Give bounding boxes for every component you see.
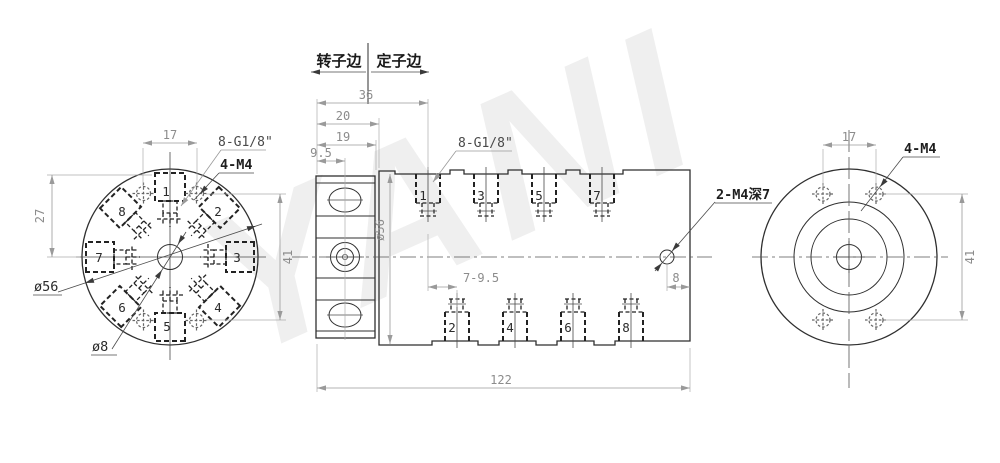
svg-text:5: 5 (163, 319, 171, 334)
svg-text:8: 8 (672, 271, 679, 285)
svg-text:8-G1/8": 8-G1/8" (218, 135, 273, 150)
svg-text:17: 17 (842, 130, 856, 144)
svg-text:6: 6 (118, 300, 126, 315)
stator-side-label: 定子边 (376, 52, 422, 70)
svg-text:6: 6 (564, 320, 572, 335)
svg-text:2: 2 (448, 320, 456, 335)
svg-text:17: 17 (163, 128, 177, 142)
svg-text:4: 4 (214, 300, 222, 315)
svg-text:5: 5 (535, 188, 543, 203)
svg-text:3: 3 (477, 188, 485, 203)
drawing-svg: YANI 转子边 定子边 1 2 3 4 5 6 (0, 0, 1000, 463)
middle-dim-8: 8 (667, 263, 690, 291)
svg-text:4: 4 (506, 320, 514, 335)
svg-text:19: 19 (336, 130, 350, 144)
svg-text:7: 7 (95, 250, 103, 265)
svg-text:20: 20 (336, 109, 350, 123)
svg-text:3: 3 (233, 250, 241, 265)
svg-text:2-M4深7: 2-M4深7 (716, 186, 770, 203)
svg-text:2: 2 (214, 204, 222, 219)
svg-text:8-G1/8": 8-G1/8" (458, 136, 513, 151)
svg-text:7: 7 (593, 188, 601, 203)
svg-text:27: 27 (33, 209, 47, 223)
svg-text:8: 8 (622, 320, 630, 335)
svg-text:122: 122 (490, 373, 512, 387)
technical-drawing-canvas: YANI 转子边 定子边 1 2 3 4 5 6 (0, 0, 1000, 463)
svg-text:ø8: ø8 (92, 339, 108, 355)
svg-text:1: 1 (419, 188, 427, 203)
right-dim-17: 17 (823, 130, 876, 186)
svg-text:ø56: ø56 (373, 219, 387, 241)
svg-text:36: 36 (359, 88, 373, 102)
right-view: 17 41 4-M4 (752, 130, 977, 388)
svg-text:41: 41 (963, 250, 977, 264)
svg-text:7-9.5: 7-9.5 (463, 271, 499, 285)
watermark-text: YANI (170, 0, 735, 400)
left-label-dia8: ø8 (91, 232, 186, 355)
rotor-side-label: 转子边 (316, 52, 362, 70)
svg-text:8: 8 (118, 204, 126, 219)
svg-text:ø56: ø56 (34, 279, 58, 295)
middle-dim-122: 122 (317, 344, 690, 392)
svg-text:1: 1 (162, 184, 170, 199)
svg-text:4-M4: 4-M4 (220, 157, 253, 173)
svg-text:4-M4: 4-M4 (904, 141, 937, 157)
svg-text:9.5: 9.5 (310, 146, 332, 160)
